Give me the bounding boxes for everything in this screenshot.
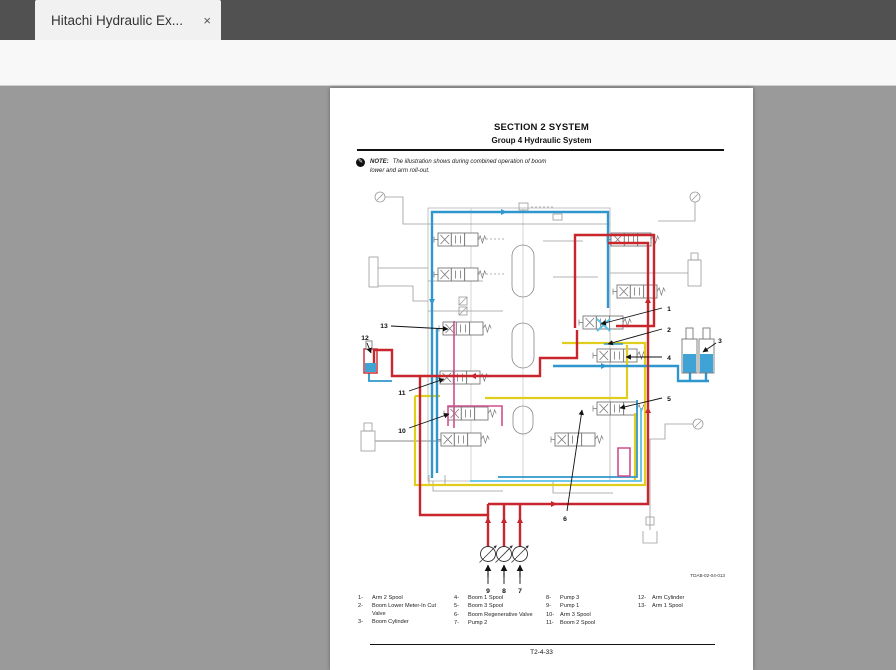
red-flow-lines xyxy=(374,235,654,547)
footer-rule xyxy=(370,644,715,645)
section-title: SECTION 2 SYSTEM xyxy=(330,122,753,133)
legend-item: 8-Pump 3 xyxy=(546,595,638,602)
legend-item: 7-Pump 2 xyxy=(454,620,546,627)
callout-4: 4 xyxy=(667,355,671,362)
callout-8: 8 xyxy=(502,588,506,595)
legend-item: 1-Arm 2 Spool xyxy=(358,595,454,602)
note-label: NOTE: xyxy=(370,159,389,165)
callout-9: 9 xyxy=(486,588,490,595)
document-viewport[interactable]: SECTION 2 SYSTEM Group 4 Hydraulic Syste… xyxy=(0,86,896,670)
legend-item: 6-Boom Regenerative Valve xyxy=(454,612,546,619)
document-tab[interactable]: Hitachi Hydraulic Ex... × xyxy=(35,0,221,40)
note-pen-icon: ✎ xyxy=(356,158,365,167)
tab-close-icon[interactable]: × xyxy=(203,14,211,27)
legend-item: 2-Boom Lower Meter-In Cut Valve xyxy=(358,603,454,618)
hydraulic-diagram: 1 2 3 4 5 6 7 8 9 10 11 12 13 xyxy=(353,181,753,595)
circuit-skeleton xyxy=(361,192,703,543)
legend-item: 5-Boom 3 Spool xyxy=(454,603,546,610)
legend-item: 9-Pump 1 xyxy=(546,603,638,610)
legend: 1-Arm 2 Spool 2-Boom Lower Meter-In Cut … xyxy=(358,595,730,627)
legend-item: 3-Boom Cylinder xyxy=(358,619,454,626)
callout-2: 2 xyxy=(667,327,671,334)
callout-7: 7 xyxy=(518,588,522,595)
note-text: The illustration shows during combined o… xyxy=(370,159,546,174)
figure-reference: TDAB-02-04-013 xyxy=(625,573,725,578)
page-number-footer: T2-4-33 xyxy=(330,649,753,656)
pdf-page: SECTION 2 SYSTEM Group 4 Hydraulic Syste… xyxy=(330,88,753,670)
callout-13: 13 xyxy=(380,323,388,330)
callout-6: 6 xyxy=(563,516,567,523)
group-title: Group 4 Hydraulic System xyxy=(330,136,753,145)
header-rule xyxy=(357,149,724,151)
callout-1: 1 xyxy=(667,306,671,313)
callout-12: 12 xyxy=(361,335,369,342)
callout-5: 5 xyxy=(667,396,671,403)
callout-11: 11 xyxy=(398,390,405,397)
tab-bar: Hitachi Hydraulic Ex... × xyxy=(0,0,896,40)
legend-item: 12-Arm Cylinder xyxy=(638,595,726,602)
valve-symbols xyxy=(434,233,665,446)
legend-item: 11-Boom 2 Spool xyxy=(546,620,638,627)
legend-item: 4-Boom 1 Spool xyxy=(454,595,546,602)
callout-10: 10 xyxy=(398,428,406,435)
legend-item: 13-Arm 1 Spool xyxy=(638,603,726,610)
toolbar: / 455 46.7% xyxy=(0,40,896,86)
note-block: ✎ NOTE:The illustration shows during com… xyxy=(357,158,557,176)
acrobat-window: Hitachi Hydraulic Ex... × xyxy=(0,0,896,670)
boom-cylinder xyxy=(682,328,714,373)
tab-title: Hitachi Hydraulic Ex... xyxy=(51,13,195,28)
callout-3: 3 xyxy=(718,338,722,345)
legend-item: 10-Arm 3 Spool xyxy=(546,612,638,619)
